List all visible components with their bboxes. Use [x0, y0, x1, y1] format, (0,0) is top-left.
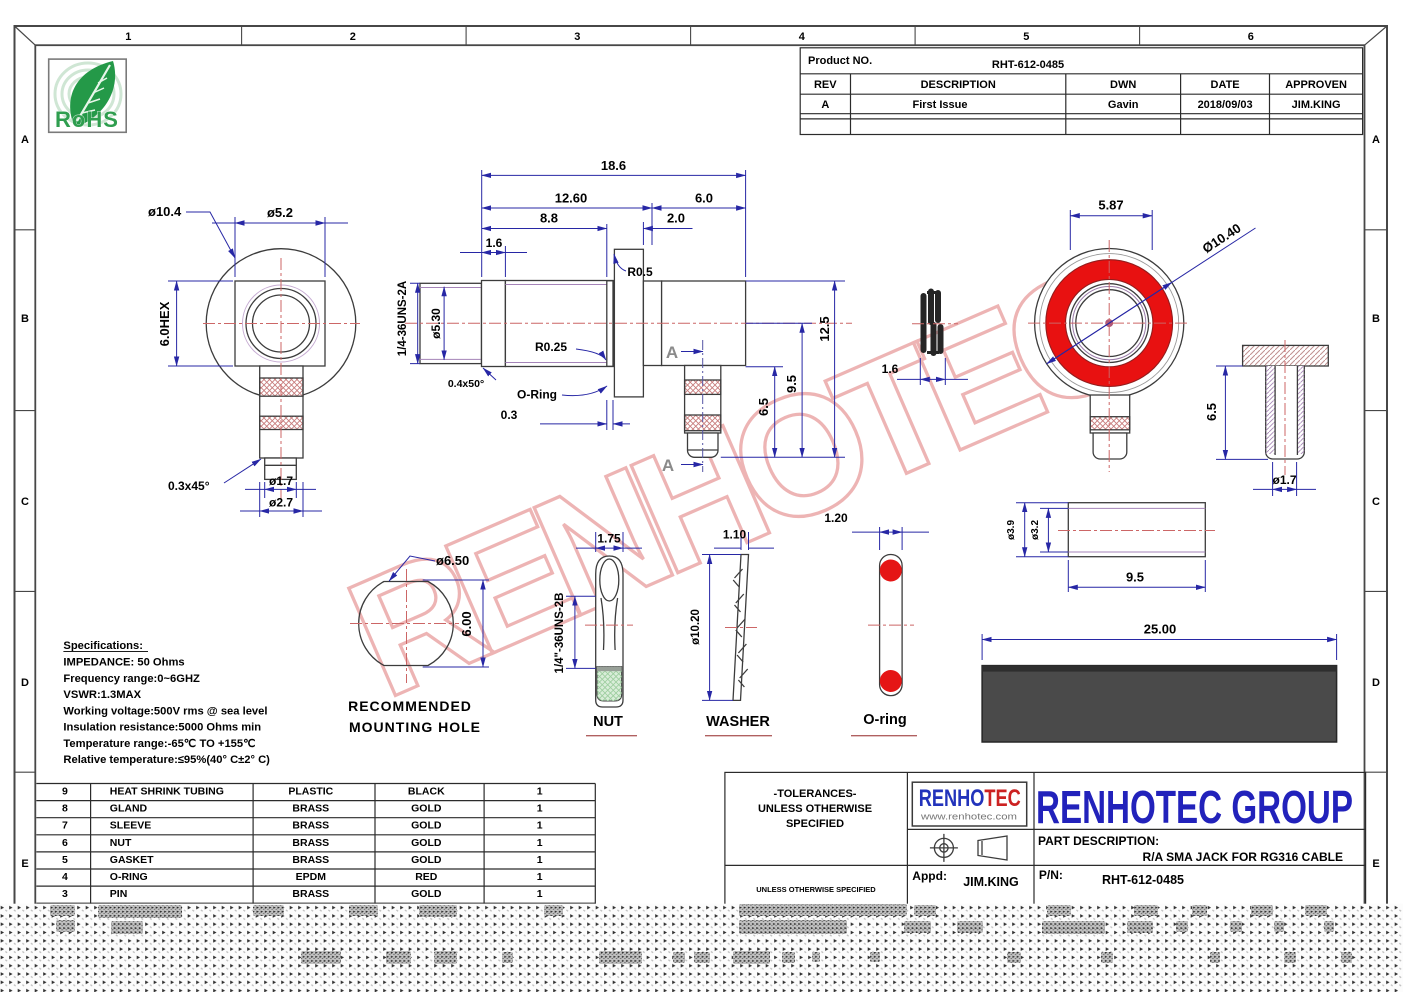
- svg-text:4: 4: [62, 871, 68, 883]
- svg-text:JIM.KING: JIM.KING: [963, 875, 1019, 889]
- svg-text:BLACK: BLACK: [408, 786, 445, 798]
- svg-text:O-RING: O-RING: [110, 871, 148, 883]
- svg-text:GOLD: GOLD: [411, 854, 442, 866]
- svg-text:6.00: 6.00: [459, 611, 474, 636]
- svg-text:3: 3: [62, 888, 68, 900]
- svg-text:1.20: 1.20: [824, 511, 848, 525]
- svg-text:R0.5: R0.5: [627, 265, 653, 279]
- svg-text:A: A: [666, 343, 678, 362]
- svg-text:BRASS: BRASS: [292, 803, 329, 815]
- svg-text:12.60: 12.60: [555, 191, 588, 206]
- svg-text:PART DESCRIPTION:: PART DESCRIPTION:: [1038, 834, 1159, 848]
- svg-text:1: 1: [125, 31, 131, 43]
- svg-text:Product NO.: Product NO.: [808, 55, 872, 67]
- svg-text:2018/09/03: 2018/09/03: [1198, 99, 1253, 111]
- svg-text:Working voltage:500V rms @ sea: Working voltage:500V rms @ sea level: [63, 706, 267, 718]
- svg-text:BRASS: BRASS: [292, 820, 329, 832]
- svg-text:-TOLERANCES-: -TOLERANCES-: [774, 788, 857, 800]
- svg-text:PIN: PIN: [110, 888, 128, 900]
- svg-text:1: 1: [537, 803, 543, 815]
- svg-text:RECOMMENDED: RECOMMENDED: [348, 698, 472, 714]
- svg-text:ø10.4: ø10.4: [148, 204, 182, 219]
- svg-text:7: 7: [62, 820, 68, 832]
- svg-text:8.8: 8.8: [540, 211, 558, 226]
- svg-text:UNLESS OTHERWISE: UNLESS OTHERWISE: [758, 803, 872, 815]
- svg-text:Gavin: Gavin: [1108, 99, 1139, 111]
- svg-text:GOLD: GOLD: [411, 820, 442, 832]
- svg-text:ø3.9: ø3.9: [1006, 520, 1017, 540]
- svg-text:ø1.7: ø1.7: [269, 474, 293, 488]
- svg-text:Relative temperature:≤95%(40°: Relative temperature:≤95%(40° C±2° C): [63, 754, 270, 766]
- svg-text:4: 4: [799, 31, 806, 43]
- svg-text:A: A: [21, 134, 29, 146]
- svg-text:BRASS: BRASS: [292, 854, 329, 866]
- svg-text:3: 3: [574, 31, 580, 43]
- svg-text:5: 5: [1023, 31, 1029, 43]
- svg-text:C: C: [1372, 496, 1380, 508]
- svg-text:6.5: 6.5: [1204, 403, 1219, 421]
- svg-text:DESCRIPTION: DESCRIPTION: [921, 79, 996, 91]
- svg-text:First Issue: First Issue: [912, 99, 967, 111]
- svg-text:2: 2: [350, 31, 356, 43]
- svg-text:8: 8: [62, 803, 68, 815]
- svg-text:D: D: [1372, 677, 1380, 689]
- svg-text:MOUNTING HOLE: MOUNTING HOLE: [349, 719, 481, 735]
- svg-text:ø5.2: ø5.2: [267, 205, 293, 220]
- svg-text:IMPEDANCE: 50 Ohms: IMPEDANCE: 50 Ohms: [63, 657, 184, 669]
- svg-text:SLEEVE: SLEEVE: [110, 820, 151, 832]
- svg-text:EPDM: EPDM: [296, 871, 327, 883]
- svg-text:18.6: 18.6: [601, 158, 626, 173]
- svg-text:Frequency range:0~6GHZ: Frequency range:0~6GHZ: [63, 673, 200, 685]
- svg-text:JIM.KING: JIM.KING: [1292, 99, 1341, 111]
- svg-text:6.5: 6.5: [756, 398, 771, 416]
- svg-text:6.0HEX: 6.0HEX: [157, 301, 172, 346]
- svg-text:HEAT SHRINK TUBING: HEAT SHRINK TUBING: [110, 786, 224, 798]
- svg-text:WASHER: WASHER: [706, 714, 770, 730]
- svg-text:GASKET: GASKET: [110, 854, 154, 866]
- svg-text:6.0: 6.0: [695, 191, 713, 206]
- svg-text:R0.25: R0.25: [535, 340, 567, 354]
- svg-text:12.5: 12.5: [817, 316, 832, 341]
- svg-text:C: C: [21, 496, 29, 508]
- svg-text:5.87: 5.87: [1098, 198, 1123, 213]
- svg-text:DWN: DWN: [1110, 79, 1136, 91]
- svg-text:PLASTIC: PLASTIC: [288, 786, 333, 798]
- svg-text:O-ring: O-ring: [863, 712, 907, 728]
- svg-text:D: D: [21, 677, 29, 689]
- svg-text:1: 1: [537, 871, 543, 883]
- svg-text:ø10.20: ø10.20: [690, 609, 702, 645]
- svg-text:GOLD: GOLD: [411, 888, 442, 900]
- svg-text:RoHS: RoHS: [55, 107, 119, 132]
- svg-text:GLAND: GLAND: [110, 803, 148, 815]
- svg-text:ø2.7: ø2.7: [269, 496, 293, 510]
- svg-text:1/4-36UNS-2A: 1/4-36UNS-2A: [397, 281, 409, 356]
- svg-text:ø5.30: ø5.30: [429, 308, 443, 339]
- svg-text:1: 1: [537, 837, 543, 849]
- svg-text:1/4"-36UNS-2B: 1/4"-36UNS-2B: [554, 593, 566, 674]
- svg-text:BRASS: BRASS: [292, 888, 329, 900]
- svg-text:UNLESS OTHERWISE SPECIFIED: UNLESS OTHERWISE SPECIFIED: [756, 885, 876, 894]
- svg-text:VSWR:1.3MAX: VSWR:1.3MAX: [63, 689, 141, 701]
- svg-text:APPROVEN: APPROVEN: [1285, 79, 1347, 91]
- svg-text:1: 1: [537, 888, 543, 900]
- svg-text:9.5: 9.5: [1126, 570, 1144, 585]
- svg-text:25.00: 25.00: [1144, 622, 1177, 637]
- svg-text:A: A: [1372, 134, 1380, 146]
- svg-text:5: 5: [62, 854, 68, 866]
- svg-text:B: B: [1372, 313, 1380, 325]
- svg-text:9: 9: [62, 786, 68, 798]
- svg-text:A: A: [662, 456, 674, 475]
- svg-text:2.0: 2.0: [667, 211, 685, 226]
- svg-text:9.5: 9.5: [784, 375, 799, 393]
- svg-text:GOLD: GOLD: [411, 837, 442, 849]
- svg-text:DATE: DATE: [1211, 79, 1240, 91]
- svg-text:ø1.7: ø1.7: [1272, 473, 1296, 487]
- svg-text:Temperature range:-65℃ TO +155: Temperature range:-65℃ TO +155℃: [63, 738, 255, 750]
- svg-text:1.10: 1.10: [723, 528, 747, 542]
- svg-text:NUT: NUT: [110, 837, 132, 849]
- svg-text:GOLD: GOLD: [411, 803, 442, 815]
- svg-text:0.3: 0.3: [501, 408, 518, 422]
- svg-text:ø3.2: ø3.2: [1030, 520, 1041, 540]
- svg-text:RENHOTEC: RENHOTEC: [919, 785, 1021, 812]
- svg-text:RED: RED: [415, 871, 438, 883]
- svg-text:SPECIFIED: SPECIFIED: [786, 818, 844, 830]
- svg-text:1: 1: [537, 854, 543, 866]
- svg-text:Insulation resistance:5000 Ohm: Insulation resistance:5000 Ohms min: [63, 722, 261, 734]
- svg-text:BRASS: BRASS: [292, 837, 329, 849]
- svg-text:6: 6: [62, 837, 68, 849]
- svg-text:1: 1: [537, 820, 543, 832]
- svg-text:REV: REV: [814, 79, 837, 91]
- svg-text:NUT: NUT: [593, 714, 623, 730]
- svg-text:RHT-612-0485: RHT-612-0485: [1102, 873, 1184, 887]
- svg-text:0.4x50°: 0.4x50°: [448, 378, 484, 390]
- svg-text:E: E: [1372, 858, 1379, 870]
- svg-text:Specifications:: Specifications:: [63, 640, 143, 652]
- svg-text:1.6: 1.6: [882, 362, 899, 376]
- svg-text:P/N:: P/N:: [1039, 868, 1063, 882]
- svg-text:A: A: [821, 99, 829, 111]
- svg-text:1.6: 1.6: [486, 236, 503, 250]
- svg-text:1.75: 1.75: [597, 532, 621, 546]
- svg-text:RHT-612-0485: RHT-612-0485: [992, 59, 1064, 71]
- svg-text:RENHOTEC GROUP: RENHOTEC GROUP: [1036, 781, 1353, 833]
- svg-text:Appd:: Appd:: [912, 869, 947, 883]
- svg-text:ø6.50: ø6.50: [436, 553, 469, 568]
- svg-text:www.renhotec.com: www.renhotec.com: [920, 812, 1017, 823]
- svg-text:E: E: [21, 858, 28, 870]
- svg-text:B: B: [21, 313, 29, 325]
- svg-text:0.3x45°: 0.3x45°: [168, 479, 210, 493]
- svg-text:1: 1: [537, 786, 543, 798]
- svg-text:O-Ring: O-Ring: [517, 388, 557, 402]
- svg-text:R/A SMA JACK FOR RG316 CABLE: R/A SMA JACK FOR RG316 CABLE: [1143, 850, 1343, 864]
- svg-text:6: 6: [1248, 31, 1254, 43]
